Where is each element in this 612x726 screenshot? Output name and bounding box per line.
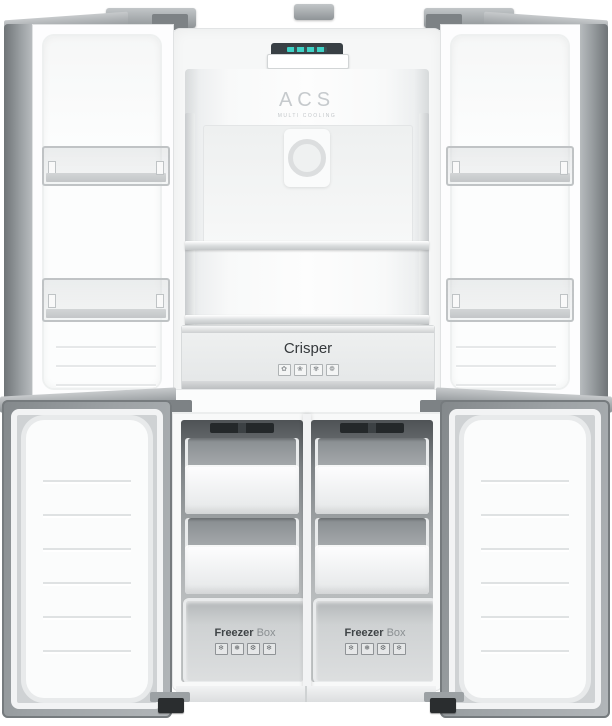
freezer-vent-left-icon (210, 423, 274, 433)
meat-icon: ❅ (231, 643, 244, 655)
freezer-bin-left-1 (185, 438, 299, 514)
display-glass-shelf (267, 54, 349, 69)
fish-icon: ❄ (345, 643, 358, 655)
crisper-drawer: Crisper ✿ ❀ ✾ ❁ (181, 325, 435, 391)
fridge-compartment: ACS MULTI COOLING Crisper ✿ ❀ ✾ ❁ (172, 28, 442, 414)
glass-shelf-lower (185, 315, 429, 324)
shrimp-icon: ❄ (393, 643, 406, 655)
crisper-icons: ✿ ❀ ✾ ❁ (182, 364, 434, 376)
shrimp-icon: ❄ (263, 643, 276, 655)
air-vent-control (284, 129, 330, 187)
freezer-cavity-right: FreezerBox ❄ ❅ ❆ ❄ (311, 420, 433, 682)
fridge-door-right-edge (580, 24, 608, 406)
fridge-door-left (4, 24, 172, 406)
fridge-door-right-bin-upper (446, 146, 574, 186)
refrigerator-photo: ACS MULTI COOLING Crisper ✿ ❀ ✾ ❁ (0, 0, 612, 726)
fridge-door-left-bin-lower (42, 278, 170, 322)
freezer-door-left (2, 400, 172, 718)
freezer-box-label: FreezerBox (214, 627, 275, 639)
freezer-bin-right-2 (315, 518, 429, 594)
freezer-box-label-light: Box (257, 627, 276, 639)
freezer-box-label: FreezerBox (344, 627, 405, 639)
crisper-top-rail (182, 326, 434, 333)
vegetable-icon: ❆ (377, 643, 390, 655)
freezer-cavity-left: FreezerBox ❄ ❅ ❆ ❄ (181, 420, 303, 682)
fish-icon: ❄ (215, 643, 228, 655)
bin-base (46, 173, 166, 182)
top-center-tab (294, 4, 334, 20)
base-seam (305, 686, 307, 702)
fridge-door-right-bin-lower (446, 278, 574, 322)
cherry-icon: ❁ (326, 364, 339, 376)
side-rail-right (419, 113, 429, 329)
freezer-compartment: FreezerBox ❄ ❅ ❆ ❄ FreezerBox ❄ (172, 412, 442, 691)
foot-right (430, 698, 456, 713)
freezer-box-drawer-right: FreezerBox ❄ ❅ ❆ ❄ (313, 598, 433, 682)
side-rail-left (185, 113, 195, 329)
vent-ring-icon (288, 139, 326, 177)
foot-left (158, 698, 184, 713)
fridge-door-left-bin-upper (42, 146, 170, 186)
brand-logo: ACS (173, 89, 441, 112)
bin-base (46, 309, 166, 318)
fridge-door-left-edge (4, 24, 32, 406)
crisper-label: Crisper (182, 340, 434, 357)
freezer-door-right (440, 400, 610, 718)
brand-logo-block: ACS MULTI COOLING (173, 89, 441, 119)
pear-icon: ✾ (310, 364, 323, 376)
freezer-box-label-bold: Freezer (214, 627, 253, 639)
freezer-box-icons: ❄ ❅ ❆ ❄ (345, 643, 406, 655)
freezer-door-left-panel (26, 420, 148, 698)
bin-base (450, 173, 570, 182)
freezer-box-icons: ❄ ❅ ❆ ❄ (215, 643, 276, 655)
apple-icon: ✿ (278, 364, 291, 376)
freezer-box-label-bold: Freezer (344, 627, 383, 639)
vegetable-icon: ❆ (247, 643, 260, 655)
freezer-bin-right-1 (315, 438, 429, 514)
fridge-door-right (440, 24, 608, 406)
freezer-box-label-light: Box (387, 627, 406, 639)
freezer-door-right-panel (464, 420, 586, 698)
freezer-bin-left-2 (185, 518, 299, 594)
freezer-center-divider (303, 414, 311, 690)
meat-icon: ❅ (361, 643, 374, 655)
glass-shelf-upper (185, 241, 429, 250)
cabinet-bottom-frame (173, 389, 441, 414)
bin-base (450, 309, 570, 318)
freezer-box-drawer-left: FreezerBox ❄ ❅ ❆ ❄ (183, 598, 303, 682)
display-readout (287, 47, 327, 52)
brand-tagline: MULTI COOLING (173, 113, 441, 119)
grapes-icon: ❀ (294, 364, 307, 376)
freezer-vent-right-icon (340, 423, 404, 433)
